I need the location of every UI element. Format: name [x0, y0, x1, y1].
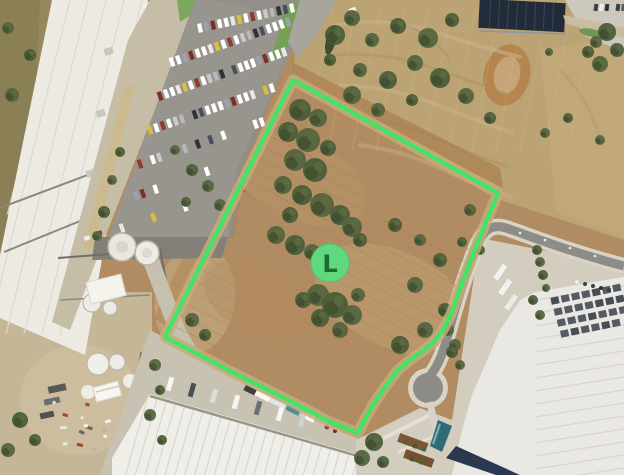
cul-de-sac — [413, 373, 443, 403]
location-marker[interactable]: L — [311, 244, 349, 282]
satellite-map: L — [0, 0, 624, 475]
marker-label: L — [322, 250, 337, 278]
aerial-imagery: L — [0, 0, 624, 475]
